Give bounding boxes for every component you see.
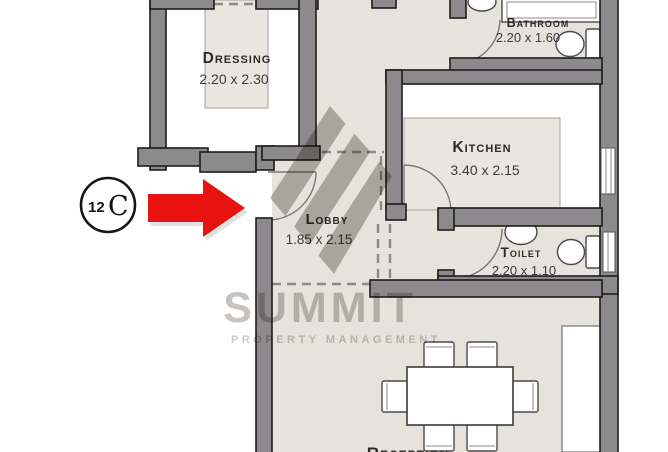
watermark-subtitle: PROPERTY MANAGEMENT	[231, 334, 441, 346]
wall	[450, 0, 466, 18]
dining-table	[407, 367, 513, 425]
wall	[200, 152, 256, 172]
floor-plan: Dressing 2.20 x 2.30 Bathroom 2.20 x 1.6…	[0, 0, 668, 452]
floor-plan-page: Dressing 2.20 x 2.30 Bathroom 2.20 x 1.6…	[0, 0, 668, 452]
unit-letter: C	[108, 191, 129, 222]
wall	[150, 0, 214, 9]
wall	[450, 208, 602, 226]
chair	[512, 381, 538, 412]
reception-label: Reception	[367, 444, 450, 452]
kitchen-window	[601, 148, 615, 194]
entrance-arrow-icon	[148, 179, 245, 237]
toilet-bowl-icon	[556, 32, 584, 57]
watermark-title: SUMMIT	[223, 284, 417, 332]
wall	[138, 148, 208, 166]
kitchen-dims: 3.40 x 2.15	[450, 162, 519, 178]
bathroom-dims: 2.20 x 1.60	[496, 30, 560, 45]
wall	[438, 208, 454, 230]
chair	[382, 381, 408, 412]
toilet-window	[603, 232, 615, 272]
kitchen-label: Kitchen	[452, 139, 511, 156]
entrance-marker: 12 C	[81, 178, 248, 241]
dressing-label: Dressing	[203, 50, 272, 67]
toilet-label: Toilet	[501, 245, 542, 260]
wall	[386, 70, 602, 84]
chair	[467, 424, 497, 451]
wall	[150, 0, 166, 170]
chair	[467, 342, 497, 369]
toilet-bowl-icon	[558, 240, 585, 265]
toilet-dims: 2.20 x 1.10	[492, 263, 556, 278]
dressing-dims: 2.20 x 2.30	[199, 71, 268, 87]
wall	[386, 204, 406, 220]
unit-number: 12	[88, 199, 105, 216]
bathroom-label: Bathroom	[507, 16, 570, 30]
toilet-tank-icon	[586, 236, 600, 268]
toilet-tank-icon	[586, 29, 600, 59]
wall	[386, 70, 402, 210]
chair	[424, 342, 454, 369]
wall	[372, 0, 396, 8]
reception-window-bay	[562, 326, 600, 452]
